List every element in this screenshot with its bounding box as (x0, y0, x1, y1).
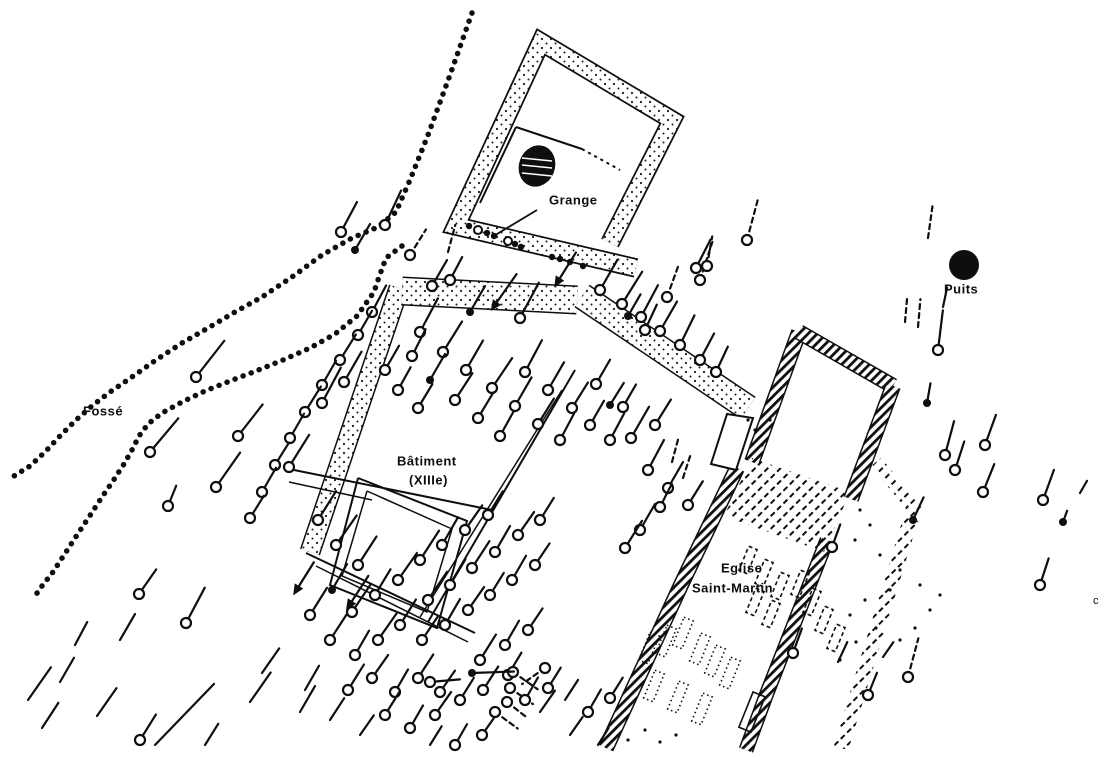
grave-head-circle (135, 735, 145, 745)
grave-marker (635, 504, 655, 535)
grave-head-circle (445, 580, 455, 590)
grave-marker (415, 531, 439, 565)
grave-head-circle (583, 707, 593, 717)
grave-marker (663, 462, 683, 493)
grave-stem (330, 698, 344, 720)
grave-head-circle (530, 560, 540, 570)
rubble-dot (853, 538, 856, 541)
grave-marker (250, 673, 271, 702)
posthole (580, 263, 586, 269)
grave-marker (437, 517, 458, 550)
label-batiment-1: Bâtiment (397, 454, 457, 469)
sarcophagus-dashed-outline (762, 600, 780, 627)
grave-head-circle (626, 433, 636, 443)
grave-marker (191, 341, 224, 382)
grave-head-circle (617, 299, 627, 309)
posthole (466, 223, 472, 229)
grave-marker (485, 573, 504, 600)
grave-head-circle (461, 365, 471, 375)
posthole (518, 244, 524, 250)
sarcophagus-dotted-outline (673, 617, 694, 649)
grave-marker (435, 671, 455, 697)
grave-marker (475, 635, 496, 665)
grave-head-circle (393, 575, 403, 585)
grave-marker (1038, 470, 1054, 505)
grave-head-circle (520, 695, 530, 705)
grave-marker (478, 667, 498, 695)
grave-marker (650, 400, 671, 430)
grave-head-circle (980, 440, 990, 450)
grave-head-circle (339, 377, 349, 387)
grave-marker (413, 384, 432, 413)
label-batiment-2: (XIIIe) (409, 473, 448, 488)
grave-marker (583, 689, 601, 717)
grave-marker (317, 361, 336, 390)
grave-marker (742, 197, 759, 245)
grave-head-circle (211, 482, 221, 492)
rubble-dot (848, 613, 851, 616)
grave-marker (473, 392, 493, 423)
grave-marker (463, 587, 484, 615)
grave-marker (1059, 511, 1067, 526)
grave-head-circle (435, 687, 445, 697)
grave-head-circle (933, 345, 943, 355)
grave-head-circle (595, 285, 605, 295)
grave-head-circle (380, 365, 390, 375)
grave-head-dot (466, 308, 474, 316)
grave-head-circle (350, 650, 360, 660)
wall-stipple-bands (310, 288, 748, 552)
grave-stem (1080, 481, 1087, 493)
grave-marker (500, 621, 519, 650)
grange-partition-line (516, 127, 582, 149)
grave-stem (250, 673, 271, 702)
grave-head-circle (145, 447, 155, 457)
grave-marker (626, 407, 649, 443)
site-plan-page: Grange Puits Fossé Bâtiment (XIIIe) Egli… (0, 0, 1107, 757)
grave-marker (883, 642, 893, 657)
posthole (549, 254, 555, 260)
sarcophagus-dashed-outline (827, 624, 845, 651)
grave-head-circle (487, 383, 497, 393)
grave-head-circle (475, 655, 485, 665)
grave-head-circle (827, 542, 837, 552)
grave-head-circle (655, 326, 665, 336)
grave-marker (510, 377, 532, 411)
grave-marker (543, 362, 564, 395)
grave-marker (360, 715, 374, 735)
sarcophagus-dotted-outline (720, 657, 741, 689)
grave-marker (905, 296, 907, 322)
sarcophagus-dashed-outline (771, 572, 789, 599)
rubble-dot (768, 418, 771, 421)
grave-marker (393, 553, 417, 585)
grave-head-circle (380, 710, 390, 720)
grave-head-circle (490, 547, 500, 557)
grave-head-circle (423, 595, 433, 605)
grave-head-circle (495, 431, 505, 441)
grave-head-circle (513, 530, 523, 540)
rubble-dot (874, 626, 877, 629)
grave-marker (426, 354, 445, 384)
rubble-dot (753, 428, 756, 431)
grave-marker (838, 642, 847, 662)
grave-marker (636, 285, 658, 322)
grave-marker (617, 272, 642, 309)
grave-stem (928, 202, 933, 238)
grave-stem (683, 455, 690, 478)
grave-stem (305, 666, 319, 690)
grave-marker (950, 441, 964, 475)
grave-stem (299, 562, 314, 586)
grave-head-circle (313, 515, 323, 525)
grave-marker (300, 686, 315, 712)
grave-marker (75, 622, 87, 645)
grave-marker (933, 310, 943, 355)
grave-stem (672, 437, 679, 462)
sarcophagus-dotted-outline (690, 633, 711, 665)
grave-marker (336, 202, 357, 237)
grave-stem (42, 703, 58, 728)
grave-marker (530, 543, 550, 570)
church-wall (876, 462, 913, 507)
grave-marker (60, 658, 74, 682)
grave-head-dot (606, 401, 614, 409)
label-grange: Grange (549, 193, 598, 208)
grave-marker (205, 724, 218, 745)
grave-head-circle (695, 355, 705, 365)
grave-marker (367, 655, 388, 683)
church-wall (752, 332, 799, 462)
grave-marker (565, 680, 578, 700)
grave-head-circle (675, 340, 685, 350)
grave-marker (918, 299, 920, 327)
grave-marker (567, 383, 588, 413)
grange-dashed-line (582, 149, 620, 170)
grave-head-circle (325, 635, 335, 645)
grave-marker (405, 230, 426, 260)
grange-building (456, 42, 672, 269)
grave-head-circle (407, 351, 417, 361)
grave-head-circle (903, 672, 913, 682)
posthole (491, 233, 497, 239)
grave-marker (245, 496, 264, 523)
grave-head-circle (490, 707, 500, 717)
grave-head-circle (502, 697, 512, 707)
grave-head-circle (605, 693, 615, 703)
grave-marker (490, 526, 510, 557)
grave-marker (350, 631, 369, 660)
rubble-dot (913, 626, 916, 629)
grave-marker (1035, 558, 1049, 590)
archaeological-site-plan: Grange Puits Fossé Bâtiment (XIIIe) Egli… (0, 0, 1107, 757)
stipple-band (402, 291, 577, 300)
grave-marker (293, 562, 314, 595)
grave-head-circle (483, 510, 493, 520)
grave-marker (940, 421, 954, 460)
grave-head-circle (393, 385, 403, 395)
grave-head-circle (683, 500, 693, 510)
grave-head-circle (450, 395, 460, 405)
grave-head-dot (624, 312, 632, 320)
grave-head-circle (940, 450, 950, 460)
grave-head-circle (788, 648, 798, 658)
grave-head-circle (317, 398, 327, 408)
grave-marker (533, 399, 554, 429)
grave-marker (520, 677, 538, 705)
grave-head-circle (427, 281, 437, 291)
grave-marker (513, 512, 534, 540)
grave-stem (905, 296, 907, 322)
grave-marker (42, 703, 58, 728)
grave-head-circle (437, 540, 447, 550)
grave-head-circle (285, 433, 295, 443)
grave-head-circle (478, 685, 488, 695)
grave-marker (923, 383, 931, 407)
grave-head-circle (305, 610, 315, 620)
grave-head-dot (351, 246, 359, 254)
grave-head-circle (510, 401, 520, 411)
grave-head-circle (395, 620, 405, 630)
grave-head-dot (328, 586, 336, 594)
grave-stem (262, 648, 279, 673)
grave-head-circle (460, 525, 470, 535)
grave-head-circle (643, 465, 653, 475)
sarcophagus-dotted-outline (668, 681, 689, 713)
grave-marker (134, 569, 156, 599)
grave-head-dot (909, 516, 917, 524)
grave-head-circle (343, 685, 353, 695)
grave-stem (570, 717, 583, 735)
grave-marker (662, 264, 679, 302)
grave-head-circle (405, 250, 415, 260)
grave-marker (335, 335, 356, 365)
grave-marker (305, 666, 319, 690)
posthole-circle (474, 226, 482, 234)
grave-head-circle (425, 677, 435, 687)
grave-stem (565, 680, 578, 700)
sarcophagus-dotted-outline (705, 645, 726, 677)
grave-marker (325, 615, 346, 645)
grave-head-circle (473, 413, 483, 423)
grave-head-circle (555, 435, 565, 445)
grave-marker (155, 684, 214, 745)
grave-marker (520, 340, 542, 377)
rubble-dot (918, 583, 921, 586)
grave-marker (262, 648, 279, 673)
grave-marker (405, 705, 423, 733)
rubble-dot (928, 608, 931, 611)
grave-marker (490, 707, 518, 728)
grave-marker (257, 468, 276, 497)
grave-head-circle (440, 620, 450, 630)
church-buttress (711, 414, 753, 470)
grave-marker (695, 334, 714, 365)
grave-marker (450, 724, 467, 750)
grave-head-dot (426, 376, 434, 384)
grave-marker (331, 516, 357, 550)
church-wall (841, 505, 915, 748)
grave-head-circle (540, 663, 550, 673)
grave-stem (430, 726, 442, 745)
grave-marker (97, 688, 117, 716)
grave-marker (233, 404, 263, 441)
grave-head-circle (662, 292, 672, 302)
grave-head-circle (370, 590, 380, 600)
grave-head-circle (245, 513, 255, 523)
grave-stem (196, 341, 224, 377)
grave-marker (675, 315, 694, 350)
grave-head-circle (257, 487, 267, 497)
posthole (484, 230, 490, 236)
grave-head-circle (523, 625, 533, 635)
church-wall (799, 332, 893, 386)
puits-well (949, 250, 979, 280)
grave-head-circle (450, 740, 460, 750)
grave-marker (467, 541, 489, 573)
grave-head-circle (605, 435, 615, 445)
grave-marker (430, 726, 442, 745)
grave-head-circle (618, 402, 628, 412)
grave-marker (535, 498, 554, 525)
grave-head-circle (533, 419, 543, 429)
grave-head-circle (1038, 495, 1048, 505)
grave-head-circle (695, 275, 705, 285)
grave-head-circle (163, 501, 173, 511)
rubble-dot (858, 508, 861, 511)
church-wall (606, 468, 737, 748)
grave-head-circle (711, 367, 721, 377)
grave-stem (150, 418, 178, 452)
sarcophagus-dashed-outline (815, 606, 833, 633)
grave-head-circle (978, 487, 988, 497)
rubble-dot (643, 728, 646, 731)
grave-head-circle (650, 420, 660, 430)
grave-head-circle (191, 372, 201, 382)
grave-head-circle (430, 710, 440, 720)
grave-head-circle (520, 367, 530, 377)
grave-marker (585, 401, 604, 430)
stipple-band (582, 296, 748, 408)
grave-marker (438, 321, 462, 357)
grave-head-circle (445, 275, 455, 285)
grave-head-circle (567, 403, 577, 413)
grave-marker (711, 347, 728, 377)
grave-head-circle (373, 635, 383, 645)
grave-head-circle (134, 589, 144, 599)
grave-head-circle (636, 312, 646, 322)
grave-head-circle (353, 560, 363, 570)
grave-stem (430, 354, 445, 380)
grave-stem (360, 715, 374, 735)
grave-head-circle (535, 515, 545, 525)
grave-marker (330, 698, 344, 720)
rubble-dot (898, 568, 901, 571)
grave-head-circle (500, 640, 510, 650)
grave-head-circle (413, 403, 423, 413)
grave-marker (620, 521, 642, 553)
rubble-dot (746, 418, 749, 421)
grave-marker (523, 608, 543, 635)
rubble-dot (854, 640, 857, 643)
grave-stem (120, 614, 135, 640)
grave-stem (883, 642, 893, 657)
grave-marker (450, 373, 472, 405)
grave-head-circle (463, 605, 473, 615)
rubble-dot (626, 738, 629, 741)
grave-marker (380, 691, 400, 720)
grave-stem (97, 688, 117, 716)
grave-head-dot (468, 669, 476, 677)
grave-head-circle (950, 465, 960, 475)
rubble-dot (760, 443, 763, 446)
grave-stem (155, 684, 214, 745)
grave-head-circle (485, 590, 495, 600)
grave-marker (380, 191, 401, 230)
grave-head-circle (380, 220, 390, 230)
grave-marker (655, 302, 677, 336)
grave-head-circle (515, 313, 525, 323)
rubble-dot (674, 733, 677, 736)
grave-head-circle (417, 635, 427, 645)
grave-arrow-head (293, 583, 303, 595)
grave-marker (423, 572, 447, 605)
graves-layer (28, 191, 1087, 750)
grave-stem (300, 686, 315, 712)
grave-stem (75, 622, 87, 645)
posthole-circle (504, 237, 512, 245)
grave-marker (135, 715, 156, 745)
grave-marker (555, 414, 574, 445)
grave-head-circle (367, 673, 377, 683)
grave-head-circle (181, 618, 191, 628)
grave-head-circle (467, 563, 477, 573)
grave-stem (472, 672, 514, 673)
label-puits: Puits (944, 282, 978, 297)
grave-marker (461, 341, 483, 375)
grave-head-circle (543, 385, 553, 395)
grave-head-dot (923, 399, 931, 407)
grave-marker (591, 360, 610, 389)
grave-marker (683, 455, 690, 478)
grave-marker (928, 202, 933, 238)
grave-head-dot (1059, 518, 1067, 526)
grave-head-circle (620, 543, 630, 553)
grave-marker (373, 614, 396, 645)
grave-head-circle (336, 227, 346, 237)
grave-marker (425, 677, 460, 687)
grave-head-circle (742, 235, 752, 245)
grave-head-circle (543, 683, 553, 693)
grave-head-circle (233, 431, 243, 441)
rubble-dot (863, 598, 866, 601)
grave-head-circle (413, 673, 423, 683)
grave-head-circle (640, 325, 650, 335)
rubble-dot (878, 553, 881, 556)
grave-head-circle (300, 407, 310, 417)
grave-marker (28, 667, 51, 700)
grave-marker (643, 440, 664, 475)
grave-head-circle (507, 575, 517, 585)
grave-marker (903, 638, 918, 682)
rubble-dot (888, 588, 891, 591)
grave-marker (683, 481, 703, 510)
grave-marker (483, 491, 503, 520)
rubble-dot (938, 593, 941, 596)
grave-head-circle (863, 690, 873, 700)
grave-marker (495, 412, 514, 441)
rubble-dot (898, 638, 901, 641)
